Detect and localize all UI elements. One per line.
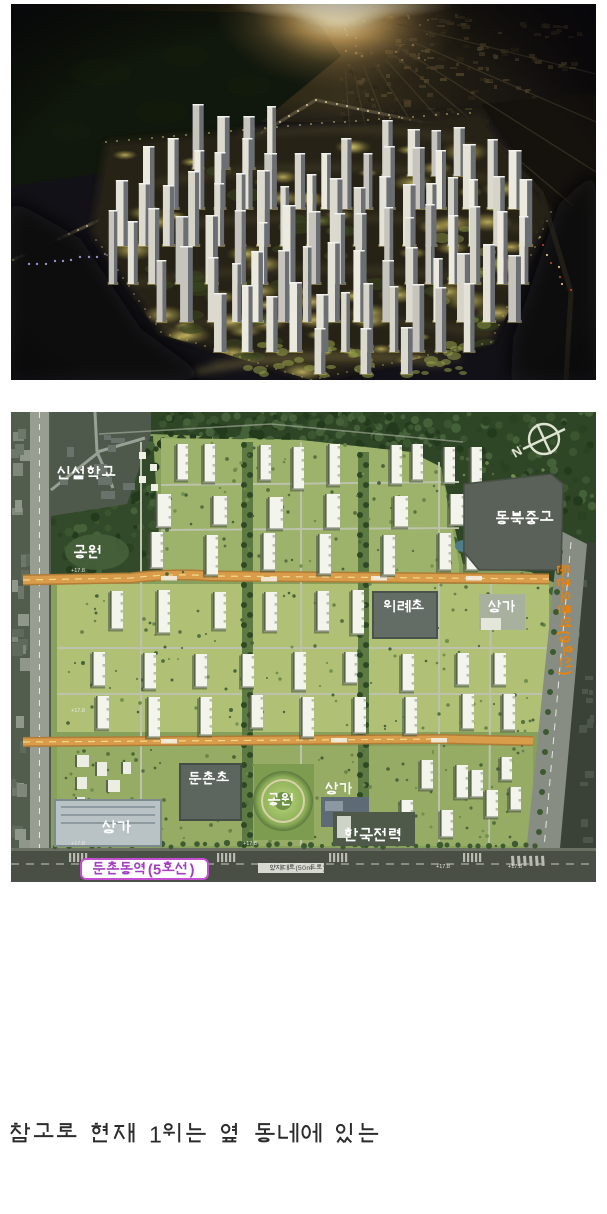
svg-text:1: 1	[149, 1121, 162, 1147]
